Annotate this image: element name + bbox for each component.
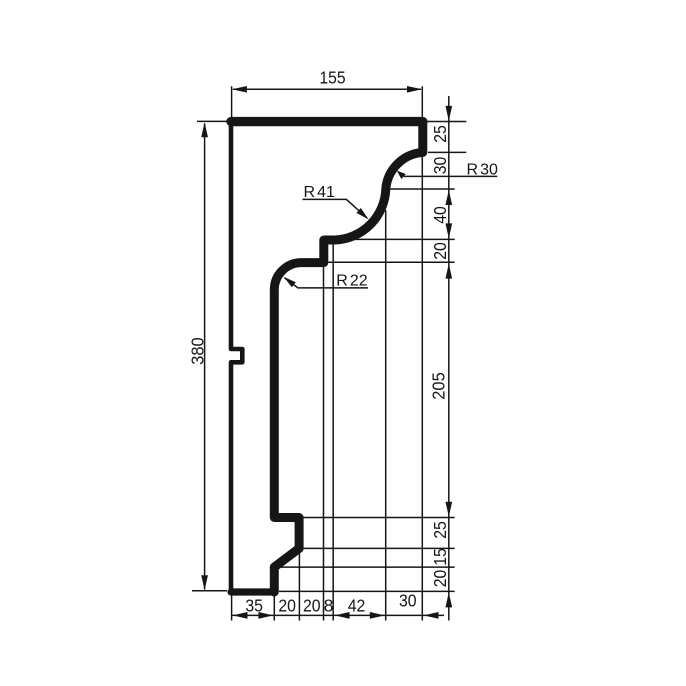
svg-text:R22: R22	[336, 273, 367, 290]
svg-text:20: 20	[303, 595, 321, 615]
svg-text:R30: R30	[467, 161, 498, 178]
svg-text:155: 155	[319, 68, 345, 88]
svg-text:205: 205	[428, 372, 448, 400]
svg-text:20: 20	[430, 570, 450, 588]
svg-text:20: 20	[430, 242, 450, 260]
svg-text:380: 380	[188, 337, 208, 365]
svg-text:30: 30	[430, 157, 450, 175]
svg-text:42: 42	[348, 595, 366, 615]
svg-text:15: 15	[430, 548, 450, 566]
svg-text:R41: R41	[304, 184, 335, 201]
svg-text:8: 8	[324, 595, 334, 615]
svg-text:20: 20	[278, 595, 296, 615]
svg-text:35: 35	[245, 595, 263, 615]
svg-text:40: 40	[430, 206, 450, 224]
svg-text:25: 25	[430, 521, 450, 539]
svg-text:30: 30	[399, 590, 417, 610]
svg-text:25: 25	[430, 125, 450, 143]
